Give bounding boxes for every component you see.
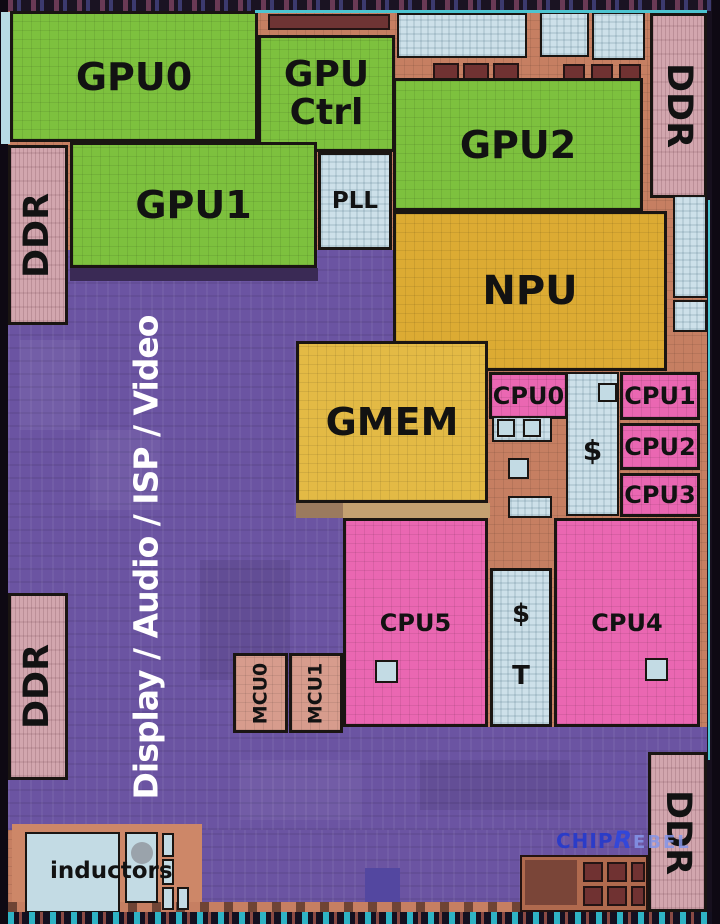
pll-block: PLL	[318, 152, 392, 250]
inductor-block-small	[162, 833, 174, 857]
sram-block	[540, 12, 589, 57]
cpu4-block: CPU4	[554, 518, 700, 727]
npu-label: NPU	[482, 271, 577, 311]
ddr-label: DDR	[21, 644, 56, 729]
cpu1-label: CPU1	[624, 384, 695, 408]
analog-cell	[631, 862, 645, 882]
fuse-bar	[268, 14, 390, 30]
ddr-phy-bottom-left: DDR	[8, 593, 68, 780]
analog-cell	[607, 886, 627, 906]
cpu5-block: CPU5	[343, 518, 488, 727]
gpu-ctrl-block: GPU Ctrl	[258, 35, 395, 152]
cpu0-block: CPU0	[489, 372, 568, 419]
pad-ring-bottom	[8, 912, 712, 924]
l2-cache-tab	[508, 496, 552, 518]
cpu1-block: CPU1	[620, 372, 700, 420]
sram-square	[497, 419, 515, 437]
l2-cache-label: $	[583, 437, 602, 465]
sram-square	[375, 660, 398, 683]
watermark-chip-text: CHIP	[556, 829, 614, 853]
inductor-block-small	[177, 887, 189, 910]
l3-cache-t-label: T	[493, 663, 549, 689]
cpu4-label: CPU4	[591, 611, 662, 635]
sram-block	[592, 12, 645, 60]
sram-block	[397, 13, 527, 58]
chiprebel-watermark: CHIPREBEL	[556, 826, 686, 856]
gpu2-label: GPU2	[460, 126, 576, 164]
gmem-block: GMEM	[296, 341, 488, 503]
analog-cell	[607, 862, 627, 882]
sram-square	[598, 383, 617, 402]
die-edge-strip-left	[1, 12, 10, 144]
gpu0-label: GPU0	[76, 58, 192, 96]
sram-square	[645, 658, 668, 681]
cpu3-label: CPU3	[624, 483, 695, 507]
sram-square	[523, 419, 541, 437]
sram-block-right	[673, 195, 707, 298]
mcu1-label: MCU1	[307, 662, 326, 724]
ddr-phy-top-right: DDR	[650, 13, 707, 198]
gpu-ctrl-label-line1: GPU	[284, 57, 369, 93]
gmem-label: GMEM	[326, 403, 459, 441]
analog-test-block	[520, 855, 648, 912]
die-texture-patch	[420, 760, 570, 810]
sram-block-right	[673, 300, 707, 332]
gpu-ctrl-label-line2: Ctrl	[290, 95, 364, 131]
die-texture-patch	[365, 868, 400, 903]
cpu3-block: CPU3	[620, 473, 700, 517]
analog-cell	[631, 886, 645, 906]
sram-strip-dark	[296, 503, 343, 518]
ddr-label: DDR	[661, 63, 696, 148]
sram-square	[508, 458, 529, 479]
seal-ring-line-right	[708, 200, 710, 760]
gpu0-block: GPU0	[10, 11, 258, 142]
media-region-label-wrap: Display / Audio / ISP / Video	[110, 310, 182, 805]
inductor-block-small	[162, 887, 174, 910]
inductors-label: inductors	[50, 860, 200, 883]
mcu0-block: MCU0	[233, 653, 288, 733]
watermark-ebel-text: EBEL	[633, 832, 691, 853]
cpu2-label: CPU2	[624, 435, 695, 459]
l3-cache-strip: $ T	[490, 568, 552, 727]
pll-label: PLL	[332, 190, 378, 213]
cpu0-label: CPU0	[493, 384, 564, 408]
die-texture-patch	[20, 340, 80, 430]
gpu1-label: GPU1	[135, 186, 251, 224]
analog-test-subblock	[525, 860, 577, 905]
gpu1-block: GPU1	[70, 142, 317, 268]
ddr-phy-top-left: DDR	[8, 145, 68, 325]
mcu0-label: MCU0	[251, 662, 270, 724]
die-texture-patch	[240, 760, 360, 820]
analog-cell	[583, 862, 603, 882]
ddr-label: DDR	[21, 192, 56, 277]
seal-ring-line-top	[255, 10, 707, 13]
cpu5-label: CPU5	[380, 611, 451, 635]
mcu1-block: MCU1	[289, 653, 343, 733]
l3-cache-dollar-label: $	[493, 601, 549, 627]
media-region-label: Display / Audio / ISP / Video	[130, 316, 163, 800]
sram-strip	[343, 503, 490, 518]
analog-cell	[583, 886, 603, 906]
die-texture-patch	[70, 268, 318, 281]
cpu2-block: CPU2	[620, 423, 700, 470]
gpu2-block: GPU2	[393, 78, 643, 211]
die-shot: DDR DDR DDR DDR GPU0 GPU Ctrl GPU1 GPU2 …	[0, 0, 720, 924]
watermark-r-text: R	[614, 826, 633, 854]
